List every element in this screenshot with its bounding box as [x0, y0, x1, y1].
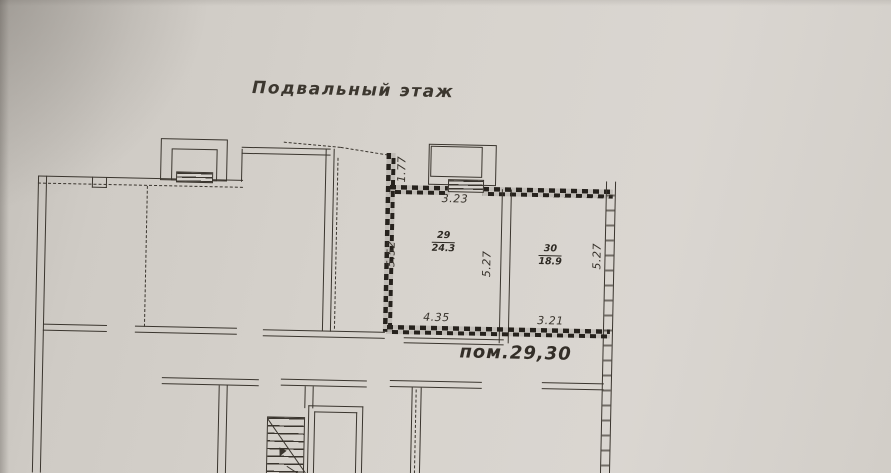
wall-niche-small: [92, 177, 107, 188]
dim-room29-left-height: 5.52: [384, 234, 397, 274]
room-29-number: 29: [432, 231, 456, 243]
wall-bottom-left-a: [43, 324, 107, 332]
corridor-wall-cap-2: [281, 379, 367, 388]
dashed-outline-2: [341, 147, 389, 156]
corridor-wall-stub-right: [542, 382, 604, 390]
corridor-wall-cap-3: [390, 380, 482, 389]
room-30-number: 30: [539, 244, 563, 256]
dim-room29-top-width: 3.23: [442, 192, 469, 206]
room-30-label: 30 18.9: [538, 244, 562, 267]
wall-middle-vertical: [322, 149, 335, 332]
premises-label: пом.29,30: [459, 341, 572, 364]
dim-room30-right-height: 5.27: [590, 236, 603, 276]
wall-interior-dashed-left: [144, 186, 148, 327]
room-30-area: 18.9: [538, 256, 562, 267]
wall-outer-right: [600, 181, 616, 473]
room-29-area: 24.3: [432, 243, 456, 254]
window-well-right-inner: [430, 146, 483, 178]
corridor-wall-cap-1: [162, 377, 259, 386]
window-left-sill: [176, 171, 213, 183]
dim-room29-bottom-width: 4.35: [423, 311, 450, 325]
wall-rooms-divider: [499, 189, 512, 343]
wall-middle-dashed: [334, 158, 339, 329]
wall-bottom-left-b: [135, 326, 237, 335]
dim-niche-height: 1.77: [395, 149, 408, 189]
scanned-floor-plan-page: Подвальный этаж: [0, 0, 891, 473]
floor-title: Подвальный этаж: [252, 78, 455, 102]
corridor-wall-stem-1: [217, 385, 228, 473]
window-right-sill: [448, 179, 484, 193]
dim-rooms-mid-height: 5.27: [480, 244, 493, 284]
wall-top-middle: [242, 147, 331, 156]
floor-plan-drawing: Подвальный этаж: [0, 0, 891, 473]
wall-bottom-left-c: [263, 329, 385, 339]
dim-room30-bottom-width: 3.21: [537, 314, 564, 328]
stair-shaft-inner: [313, 411, 357, 473]
room-29-label: 29 24.3: [432, 231, 456, 254]
